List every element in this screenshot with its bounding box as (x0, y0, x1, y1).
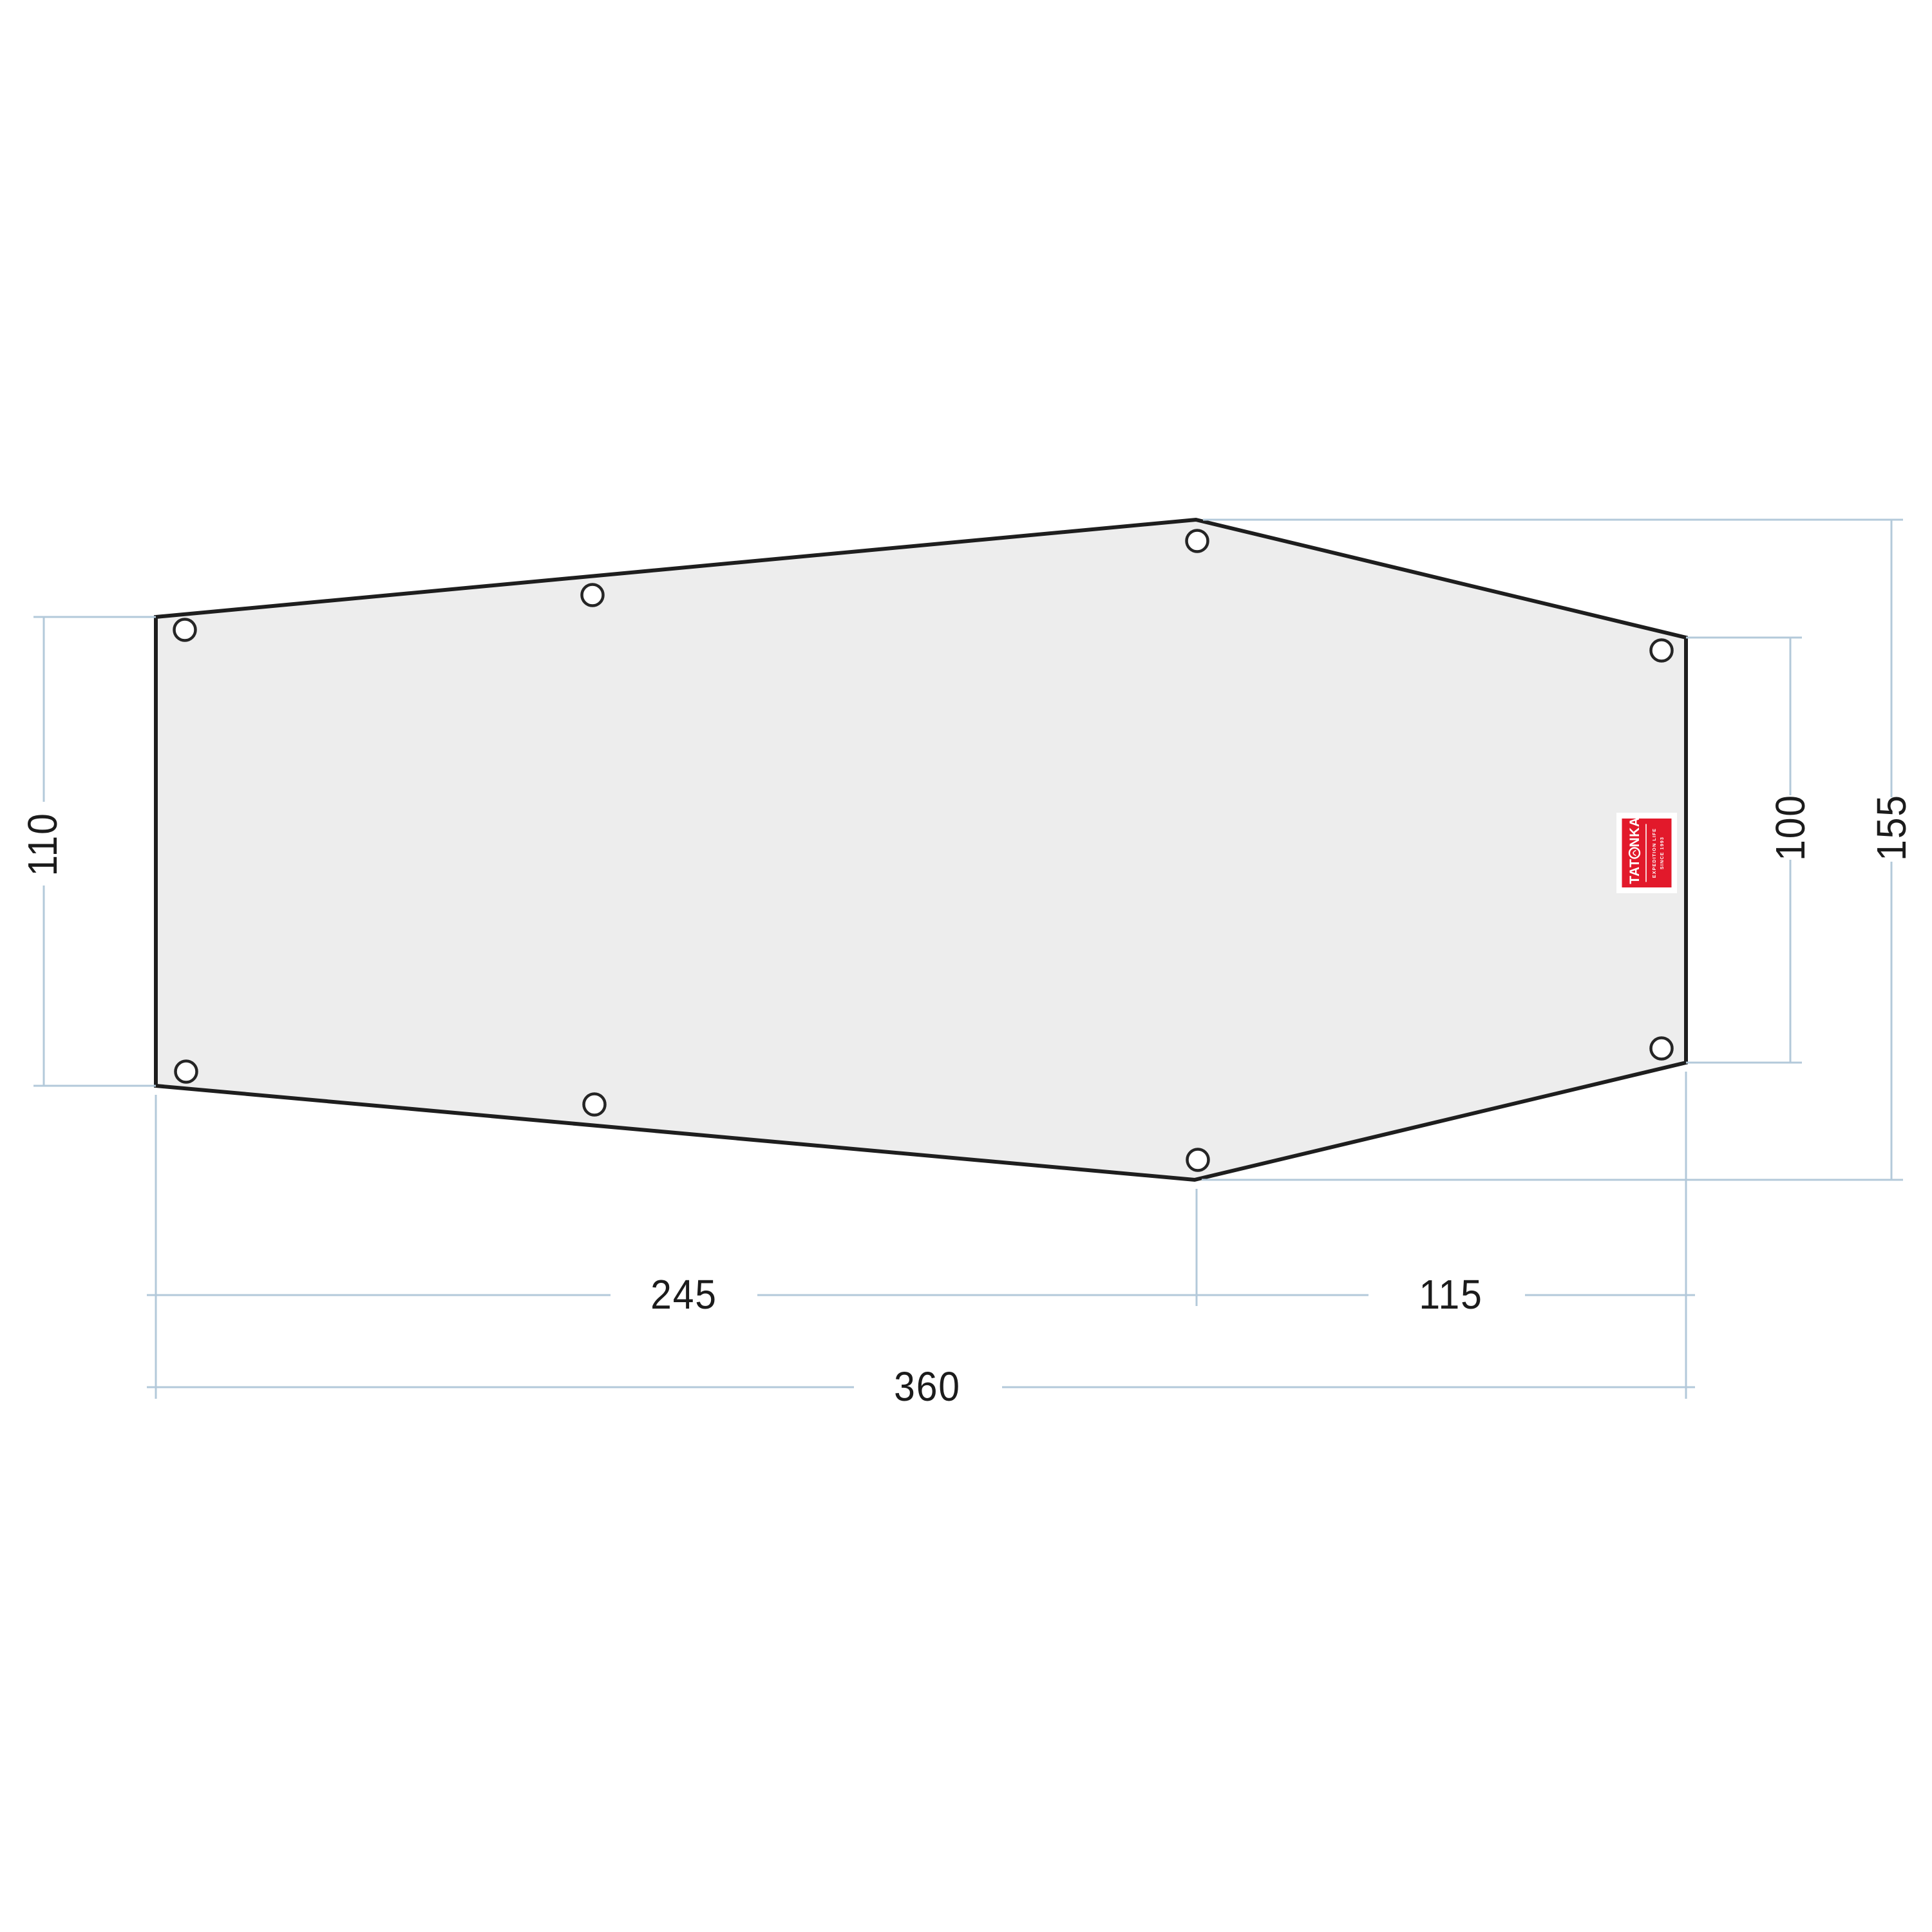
grommet (582, 585, 603, 606)
footprint-shape (156, 520, 1686, 1180)
logo-tagline-line1: EXPEDITION LIFE (1651, 828, 1657, 878)
logo-brand-suffix: NKA (1627, 817, 1642, 848)
diagram-canvas: 110 100 155 245 115 360 TAT NKA EXPEDITI… (0, 0, 1932, 1932)
dimension-label-inner-right-height: 100 (1768, 794, 1814, 861)
grommet (1187, 531, 1208, 552)
tatonka-logo: TAT NKA EXPEDITION LIFE SINCE 1993 (1616, 813, 1677, 893)
dimension-label-left-height: 110 (20, 812, 66, 876)
dimension-label-bottom-right-width: 115 (1419, 1272, 1482, 1318)
dimension-label-total-height: 155 (1869, 794, 1915, 861)
grommet (584, 1094, 605, 1115)
grommet (175, 620, 196, 641)
grommet (1188, 1150, 1209, 1171)
grommet (1651, 1038, 1672, 1059)
grommet (1651, 640, 1672, 661)
logo-tagline-line2: SINCE 1993 (1659, 837, 1665, 869)
dimension-label-total-width: 360 (894, 1364, 961, 1410)
grommet (176, 1061, 197, 1083)
dimension-label-bottom-left-width: 245 (650, 1272, 717, 1318)
footprint-dimension-diagram: 110 100 155 245 115 360 TAT NKA EXPEDITI… (0, 0, 1932, 1932)
logo-brand-prefix: TAT (1627, 859, 1642, 884)
